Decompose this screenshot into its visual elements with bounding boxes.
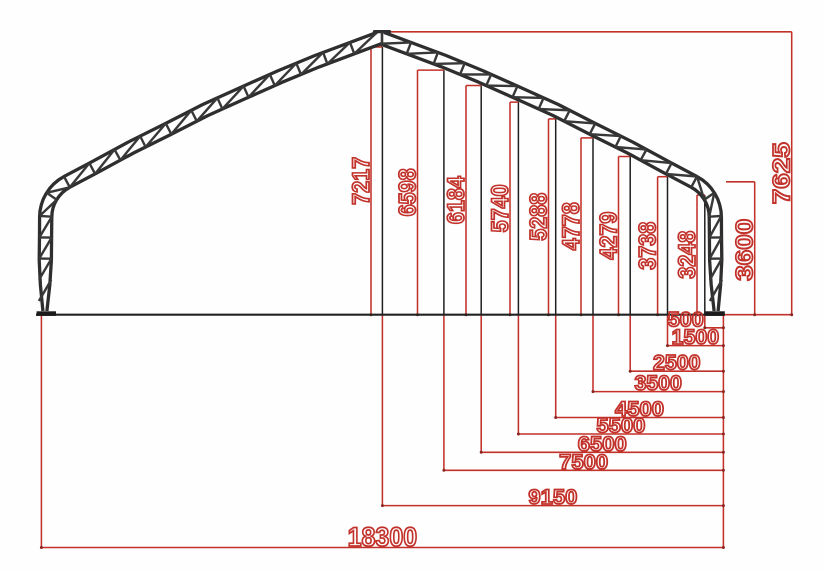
svg-text:7217: 7217 (348, 157, 375, 205)
svg-text:1500: 1500 (672, 325, 720, 349)
svg-text:7625: 7625 (769, 142, 796, 204)
svg-text:4778: 4778 (558, 202, 585, 250)
svg-text:3248: 3248 (674, 231, 701, 279)
svg-text:6184: 6184 (443, 176, 470, 224)
svg-text:6598: 6598 (394, 168, 421, 216)
svg-text:5288: 5288 (525, 193, 552, 241)
svg-text:3500: 3500 (634, 371, 682, 395)
svg-text:18300: 18300 (348, 522, 418, 552)
svg-text:4279: 4279 (595, 212, 622, 260)
svg-text:5740: 5740 (487, 184, 514, 232)
svg-text:3600: 3600 (732, 219, 759, 281)
svg-text:7500: 7500 (559, 450, 608, 474)
svg-text:9150: 9150 (528, 485, 577, 509)
svg-text:3738: 3738 (634, 222, 661, 270)
